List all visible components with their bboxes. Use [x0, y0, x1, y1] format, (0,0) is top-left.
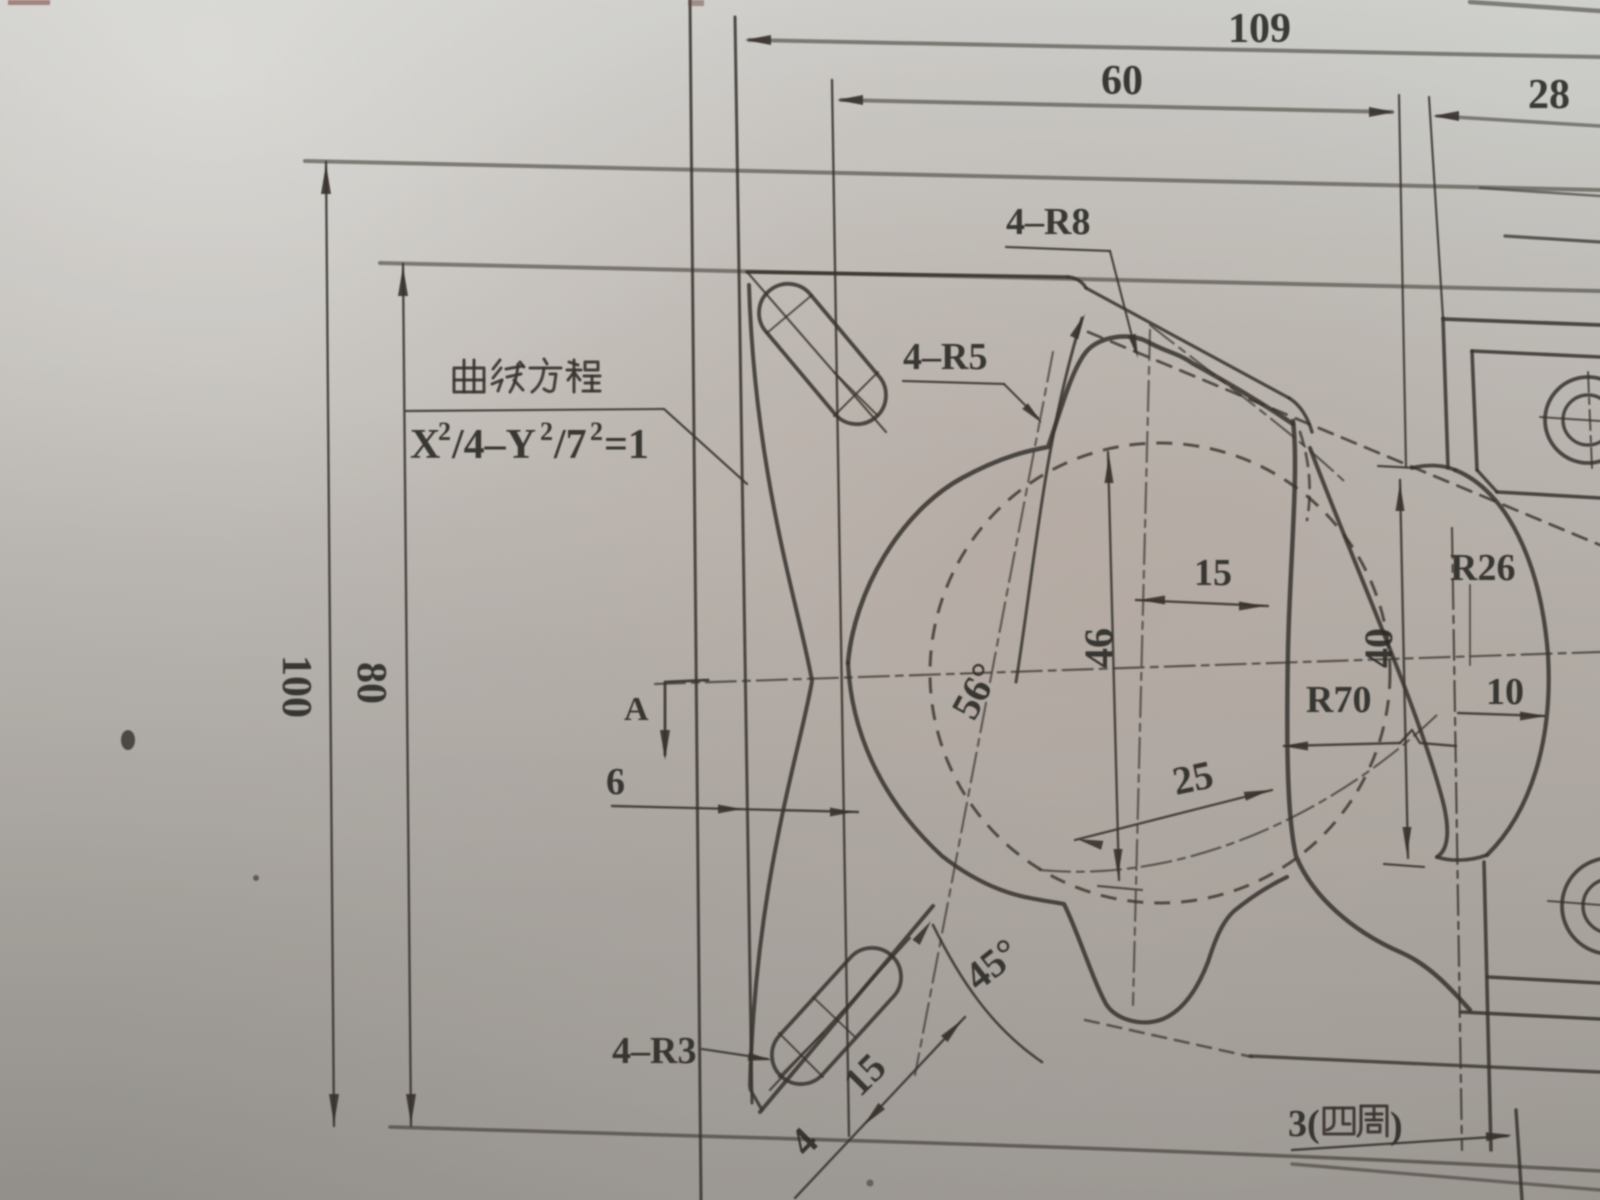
svg-text:28: 28: [1528, 72, 1570, 118]
svg-text:80: 80: [348, 662, 394, 704]
svg-text:3(: 3(: [1288, 1103, 1320, 1145]
svg-text:46: 46: [1076, 628, 1121, 668]
svg-text:6: 6: [606, 761, 625, 803]
svg-text:10: 10: [1486, 671, 1524, 713]
svg-text:=1: =1: [604, 422, 649, 468]
svg-text:100: 100: [273, 655, 319, 718]
svg-text:X: X: [410, 422, 440, 468]
svg-text:2: 2: [590, 417, 603, 446]
svg-text:A: A: [624, 691, 649, 728]
svg-text:/7: /7: [553, 422, 587, 468]
svg-text:40: 40: [1356, 628, 1401, 668]
svg-text:R26: R26: [1450, 547, 1515, 589]
svg-text:4–R3: 4–R3: [612, 1030, 696, 1072]
svg-text:109: 109: [1228, 6, 1291, 52]
svg-text:/4–Y: /4–Y: [451, 422, 536, 468]
svg-text:2: 2: [438, 417, 451, 446]
svg-text:60: 60: [1101, 58, 1143, 104]
svg-text:2: 2: [540, 417, 553, 446]
svg-text:R70: R70: [1306, 679, 1371, 721]
svg-text:): ): [1390, 1105, 1403, 1147]
svg-text:4–R5: 4–R5: [903, 336, 987, 378]
svg-text:15: 15: [1194, 552, 1232, 594]
svg-text:4–R8: 4–R8: [1006, 201, 1090, 243]
